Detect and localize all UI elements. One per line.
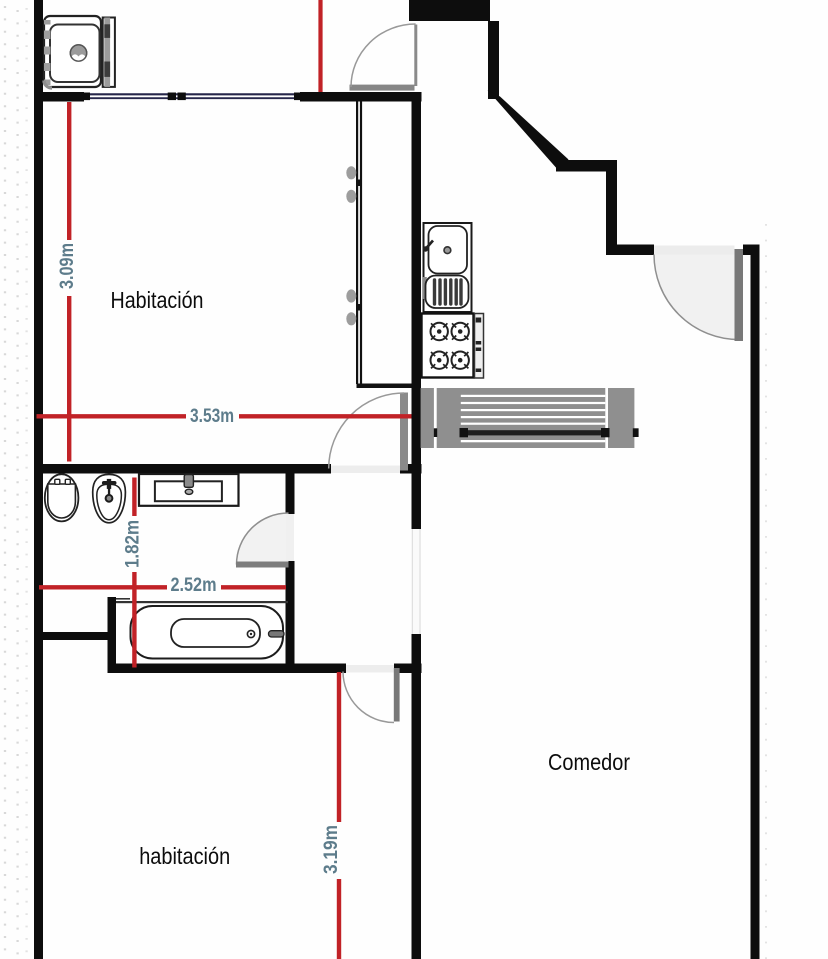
svg-text:Habitación: Habitación <box>111 287 204 313</box>
svg-text:3.09m: 3.09m <box>57 243 78 289</box>
svg-text:3.53m: 3.53m <box>190 406 234 427</box>
svg-text:3.19m: 3.19m <box>321 825 342 874</box>
svg-text:1.82m: 1.82m <box>123 520 144 568</box>
svg-text:2.52m: 2.52m <box>171 575 217 596</box>
svg-text:Comedor: Comedor <box>548 749 630 775</box>
svg-text:habitación: habitación <box>139 843 230 869</box>
